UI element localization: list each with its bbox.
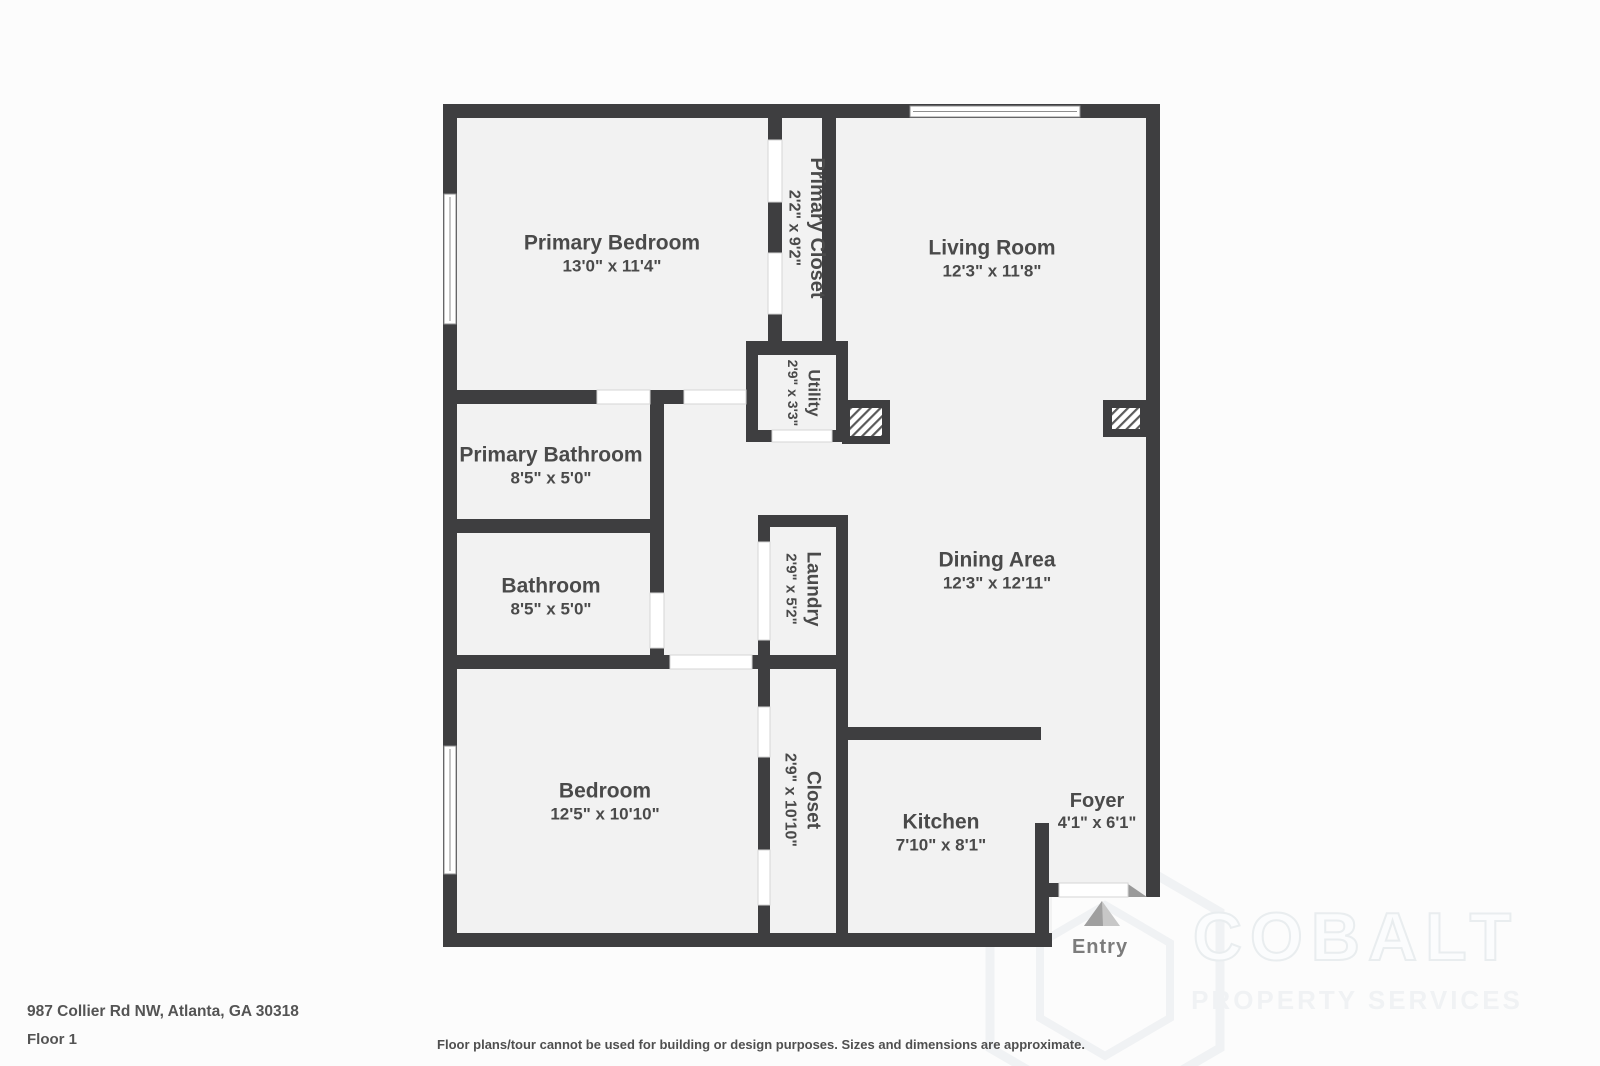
room-dims: 7'10" x 8'1"	[896, 836, 986, 855]
room-dims: 4'1" x 6'1"	[1058, 814, 1137, 832]
room-name: Laundry	[803, 552, 824, 627]
room-dims: 2'9" x 10'10"	[782, 753, 799, 847]
room-dims: 2'9" x 3'3"	[785, 360, 801, 427]
floorplan-svg: COBALT PROPERTY SERVICES	[0, 0, 1600, 1066]
room-dims: 12'3" x 12'11"	[943, 574, 1051, 593]
room-name: Foyer	[1070, 790, 1125, 812]
room-name: Bathroom	[501, 575, 600, 598]
room-label-bathroom: Bathroom 8'5" x 5'0"	[501, 575, 600, 619]
watermark-tagline: PROPERTY SERVICES	[1191, 985, 1523, 1015]
room-dims: 2'9" x 5'2"	[783, 553, 800, 624]
room-name: Primary Bathroom	[459, 444, 642, 467]
room-name: Closet	[803, 771, 824, 830]
room-label-laundry: Laundry 2'9" x 5'2"	[783, 552, 824, 627]
hatch-column-icon	[1112, 408, 1140, 429]
hatch-column-icon	[850, 408, 882, 436]
room-name: Dining Area	[938, 549, 1055, 572]
room-name: Primary Closet	[806, 157, 828, 299]
floorplan-page: COBALT PROPERTY SERVICES	[0, 0, 1600, 1066]
room-label-kitchen: Kitchen 7'10" x 8'1"	[896, 811, 986, 855]
room-label-dining-area: Dining Area 12'3" x 12'11"	[938, 549, 1055, 593]
room-label-bedroom: Bedroom 12'5" x 10'10"	[550, 780, 659, 824]
watermark-cube-icon	[1040, 905, 1170, 1056]
room-dims: 2'2" x 9'2"	[786, 190, 803, 266]
room-dims: 12'5" x 10'10"	[550, 805, 659, 824]
room-dims: 12'3" x 11'8"	[943, 262, 1042, 281]
disclaimer-text: Floor plans/tour cannot be used for buil…	[0, 1037, 1522, 1052]
room-name: Bedroom	[559, 780, 651, 803]
address-text: 987 Collier Rd NW, Atlanta, GA 30318	[27, 1003, 299, 1021]
entry-label: Entry	[1072, 936, 1128, 958]
room-name: Kitchen	[902, 811, 979, 834]
room-name: Utility	[805, 369, 824, 417]
room-dims: 8'5" x 5'0"	[511, 469, 592, 488]
room-label-living-room: Living Room 12'3" x 11'8"	[928, 237, 1055, 281]
watermark-brand: COBALT	[1193, 899, 1519, 975]
room-name: Living Room	[928, 237, 1055, 260]
room-name: Primary Bedroom	[524, 232, 700, 255]
room-dims: 8'5" x 5'0"	[511, 600, 592, 619]
room-dims: 13'0" x 11'4"	[563, 257, 662, 276]
